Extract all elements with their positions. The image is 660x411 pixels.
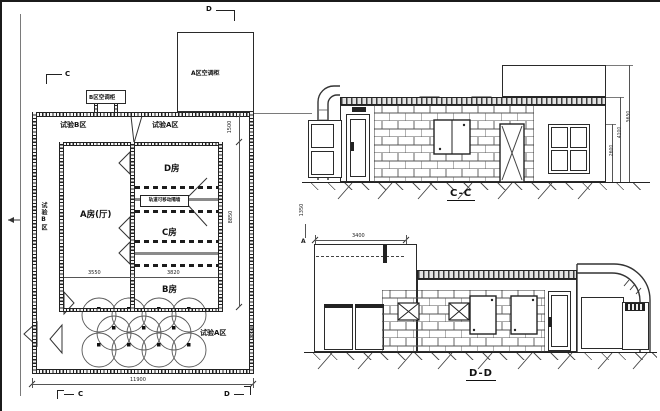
dim-8850: 8850 [228, 205, 234, 229]
door-swing [119, 152, 130, 174]
partition-track [135, 186, 218, 189]
cabinet-panel [551, 150, 568, 171]
dim-line-interior [64, 277, 218, 278]
zone-b-side-label: 试验B区 [39, 202, 48, 231]
roof-band-cc [340, 97, 606, 105]
partition-wall [135, 252, 218, 255]
inner-wall-middle [130, 142, 135, 312]
plan-outer-wall-top [32, 112, 254, 117]
cabinet-panel [551, 127, 568, 148]
zone-a-label: 试验A区 [152, 120, 178, 130]
sheet-guide-line [20, 14, 21, 396]
marker-d-bottom-line [234, 394, 244, 395]
room-c-label: C房 [162, 226, 177, 238]
duct-cabinet-door [311, 151, 334, 175]
marker-c-bottom-line [64, 394, 74, 395]
dim-line-dd-top [315, 240, 407, 241]
section-dd-label: D-D [466, 368, 496, 381]
ground-hatch-cc [302, 183, 650, 190]
plan-outer-wall-bottom [32, 369, 254, 374]
ac-cabinet-a-label: A区空调柜 [191, 68, 220, 77]
dim-cc-5650: 5650 [627, 105, 632, 129]
partition-track [135, 210, 218, 213]
dim-line-bottom [32, 384, 254, 385]
brick-wall-cc [374, 105, 534, 182]
cabinet-panel [570, 150, 587, 171]
ac-cabinet-b-label: B区空调柜 [89, 93, 115, 101]
duct-cabinet-door [311, 124, 334, 148]
dim-cc-4100: 4100 [618, 121, 623, 145]
section-marker-a: A [301, 238, 306, 245]
drawing-sheet: D A区空调柜 C B区空调柜 试验B区 试验A区 A房(厅) D房 C房 B房… [0, 0, 660, 411]
dim-dd-3400: 3400 [352, 233, 365, 239]
room-a-label: A房(厅) [80, 208, 111, 220]
tower-dashed-line [316, 256, 404, 257]
ground-line-cc [302, 182, 650, 183]
door-swing [119, 217, 130, 239]
partition-note: 轨道可移动隔墙 [140, 195, 189, 207]
marker-a-arrow-line [305, 224, 306, 238]
extension-line [254, 113, 312, 114]
marker-c-top-line [53, 74, 62, 75]
door-swing [131, 116, 142, 143]
door-swing [119, 242, 130, 264]
marker-d-bottom-bracket [244, 386, 251, 395]
plan-outer-wall-left [32, 112, 37, 374]
partition-track [135, 240, 218, 243]
door-dd-inner [551, 295, 568, 347]
dim-cc-2600: 2600 [610, 139, 615, 163]
marker-d-top-line [216, 10, 228, 11]
brick-wall-dd [382, 290, 545, 352]
tower-cabinet-rail [355, 304, 384, 308]
dim-1500: 1500 [227, 115, 233, 139]
zone-b-label: 试验B区 [60, 120, 86, 130]
door-handle-cc [351, 142, 354, 151]
tower-cabinet [324, 304, 353, 350]
wall-plate-cc [352, 107, 366, 112]
roof-band-dd [417, 270, 577, 279]
dim-tick [406, 235, 407, 244]
dim-3550: 3550 [88, 270, 101, 276]
section-marker-c-bottom: C [78, 390, 83, 398]
tower-cabinet [355, 304, 384, 350]
dim-tick [32, 378, 33, 388]
dim-11900: 11900 [130, 377, 146, 383]
marker-d-top-bracket [228, 10, 235, 21]
dim-3820: 3820 [167, 270, 180, 276]
dim-3350: 3350 [249, 321, 255, 345]
partition-track [135, 264, 218, 267]
ground-line-dd [304, 352, 657, 353]
cabinet-panel [570, 127, 587, 148]
inner-wall-left [59, 142, 64, 312]
room-b-label: B房 [162, 283, 177, 295]
ground-hatch-dd [304, 353, 657, 360]
zone-a-lower-label: 试验A区 [200, 328, 226, 338]
tower-cc [502, 65, 606, 97]
section-marker-d-bottom: D [224, 390, 230, 398]
marker-c-bottom-bracket [57, 390, 64, 399]
door-swing [50, 325, 62, 353]
dim-1350: 1350 [299, 198, 305, 222]
dim-tick [253, 378, 254, 388]
fan-label-plate [625, 303, 645, 311]
section-marker-c-top: C [65, 70, 70, 78]
louver-panel-dd [581, 297, 624, 349]
inner-wall-right [218, 142, 223, 312]
room-d-label: D房 [164, 162, 180, 174]
dim-tick [315, 235, 316, 244]
inner-wall-bottom [59, 308, 223, 312]
tower-post-dd [383, 245, 387, 263]
marker-c-top-bracket [46, 74, 53, 84]
inner-wall-top [59, 142, 223, 146]
section-cc-label: C-C [447, 188, 475, 201]
door-dd-handle [548, 317, 552, 327]
extension-line [606, 97, 624, 98]
section-marker-d-top: D [206, 5, 212, 13]
dim-line-right [239, 114, 240, 307]
tower-cabinet-rail [324, 304, 353, 308]
